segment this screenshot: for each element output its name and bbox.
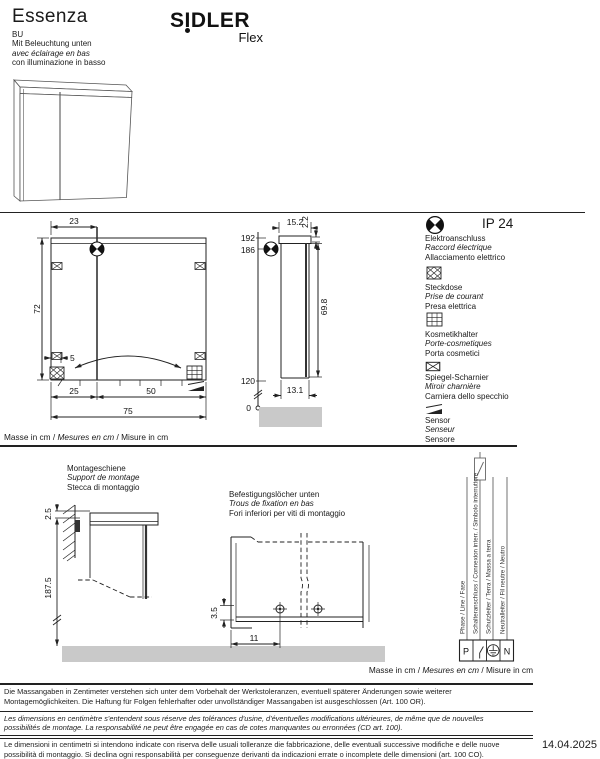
footer-rule-2b (0, 738, 533, 739)
wire-label-earth: Schutzleiter / Terra / Massa a terra (486, 539, 493, 634)
dim-total-width: 75 (123, 406, 133, 416)
legend-item-socket: Steckdose Prise de courant Presa elettri… (425, 283, 483, 311)
hinge-icon (195, 353, 205, 360)
dim-hole-offset: 3.5 (209, 607, 219, 619)
legend-label-de: Elektroanschluss (425, 234, 505, 243)
terminal-p: P (463, 647, 469, 657)
wire-label-neutral: Neutralleiter / Fil neutre / Neutro (500, 545, 507, 634)
dim-h-top: 192 (241, 233, 255, 243)
revision-date: 14.04.2025 (542, 739, 597, 751)
wire-label-phase: Phase / Line / Fase (460, 580, 467, 634)
cosmetic-holder-icon (187, 366, 202, 379)
legend-item-sensor: Sensor Senseur Sensore (425, 416, 455, 444)
legend-label-fr: Prise de courant (425, 292, 483, 301)
terminal-n: N (504, 647, 511, 657)
model-code: BU (12, 30, 105, 39)
terminal-box: P N (460, 640, 514, 661)
cabinet-front (20, 94, 132, 202)
model-desc-fr: avec éclairage en bas (12, 49, 105, 58)
model-block: BU Mit Beleuchtung unten avec éclairage … (12, 30, 105, 67)
units-fr: Mesures en cm (58, 432, 115, 442)
legend-label-fr: Porte-cosmetiques (425, 339, 492, 348)
footer-rule-1 (0, 711, 533, 712)
disclaimer-fr: Les dimensions en centimètre s'entendent… (4, 714, 509, 733)
legend-label-de: Spiegel-Scharnier (425, 373, 509, 382)
dim-door-width: 23 (69, 216, 79, 226)
disclaimer-it: Le dimensioni in centimetri si intendono… (4, 740, 509, 759)
dim-light-height: 2.2 (300, 216, 310, 228)
legend-label-fr: Senseur (425, 425, 455, 434)
product-image (8, 72, 148, 212)
brand-dot-icon (185, 28, 190, 33)
fixing-hole (311, 602, 325, 616)
dim-hole-spacing: 11 (250, 633, 259, 643)
wall-hatch (63, 505, 75, 561)
floor-slab (259, 407, 322, 427)
footer-rule-2a (0, 735, 533, 736)
legend-label-it: Carniera dello specchio (425, 392, 509, 401)
wiring-diagram: Phase / Line / Fase Schalteranschluss / … (450, 450, 535, 665)
disclaimer-de: Die Massangaben in Zentimeter verstehen … (4, 687, 509, 706)
hidden-edge-dashes (78, 580, 152, 597)
model-desc-de: Mit Beleuchtung unten (12, 39, 105, 48)
cabinet-left-side (14, 80, 20, 201)
units-it: Misure in cm (121, 432, 168, 442)
legend-label-it: Porta cosmetici (425, 349, 492, 358)
legend: IP 24 Elektroanschluss Raccord électriqu… (425, 214, 595, 444)
legend-label-de: Sensor (425, 416, 455, 425)
dim-door-height: 69.8 (319, 298, 329, 315)
ip-rating: IP 24 (482, 216, 513, 231)
page-title: Essenza (12, 6, 88, 28)
dim-rail-height: 187.5 (43, 577, 53, 599)
door-swing-arrow (75, 356, 181, 368)
units-de: Masse in cm (369, 665, 416, 675)
units-de: Masse in cm (4, 432, 51, 442)
cosmetic-holder-icon (426, 312, 443, 327)
dim-rail-offset: 2.5 (43, 508, 53, 520)
holes-drawing: 11 3.5 (209, 533, 369, 648)
legend-item-electro: Elektroanschluss Raccord électrique Alla… (425, 234, 505, 262)
dim-h-bottom: 120 (241, 376, 255, 386)
hinge-icon (52, 353, 62, 360)
units-note-bottom: Masse in cm / Mesures en cm / Misure in … (369, 665, 533, 675)
break-line (307, 533, 309, 628)
legend-label-it: Presa elettrica (425, 302, 483, 311)
legend-label-it: Sensore (425, 435, 455, 444)
units-fr: Mesures en cm (422, 665, 479, 675)
legend-label-fr: Raccord électrique (425, 243, 505, 252)
dim-height: 72 (32, 304, 42, 314)
dim-zero: 0 (246, 403, 251, 413)
legend-label-de: Steckdose (425, 283, 483, 292)
dim-right-width: 50 (146, 386, 156, 396)
electrical-connection-icon (264, 242, 278, 256)
sensor-icon (425, 404, 443, 415)
electrical-connection-icon (425, 215, 445, 235)
brand-logo: SIDLER Flex (170, 9, 263, 45)
cabinet-top-profile (90, 513, 158, 525)
dim-h-sensor: 186 (241, 245, 255, 255)
socket-icon (50, 367, 64, 379)
electrical-connection-icon (90, 242, 104, 256)
legend-label-de: Kosmetikhalter (425, 330, 492, 339)
socket-icon (426, 266, 442, 280)
fixing-hole (273, 602, 287, 616)
dimension-drawings: 23 5 (0, 212, 420, 448)
hinge-icon (195, 263, 205, 270)
section-rule-mid (0, 445, 517, 447)
dim-left-width: 25 (69, 386, 79, 396)
hinge-icon (52, 263, 62, 270)
footer-rule-thick (0, 683, 533, 685)
units-it: Misure in cm (486, 665, 533, 675)
legend-label-fr: Miroir charnière (425, 382, 509, 391)
dim-depth-body: 13.1 (287, 385, 304, 395)
rail-drawing: 2.5 187.5 (43, 504, 385, 662)
floor-slab (62, 646, 385, 662)
mounting-rail (75, 520, 80, 532)
legend-item-cosmetic: Kosmetikhalter Porte-cosmetiques Porta c… (425, 330, 492, 358)
side-view-drawing: 15.2 2.2 192 186 120 0 69.8 (241, 216, 329, 427)
sensor-icon (188, 382, 204, 392)
legend-item-hinge: Spiegel-Scharnier Miroir charnière Carni… (425, 373, 509, 401)
hinge-icon (425, 361, 441, 372)
datasheet-page: { "header": { "title": "Essenza", "brand… (0, 0, 600, 752)
mounting-drawings: 2.5 187.5 (0, 448, 460, 683)
dim-socket-offset: 5 (70, 353, 75, 363)
legend-label-it: Allacciamento elettrico (425, 253, 505, 262)
wire-label-switch: Schalteranschluss / Connexion interr. / … (473, 472, 480, 634)
units-note: Masse in cm / Mesures en cm / Misure in … (4, 432, 168, 442)
model-desc-it: con illuminazione in basso (12, 58, 105, 67)
break-line (301, 533, 303, 628)
front-view-drawing: 23 5 (32, 216, 206, 420)
